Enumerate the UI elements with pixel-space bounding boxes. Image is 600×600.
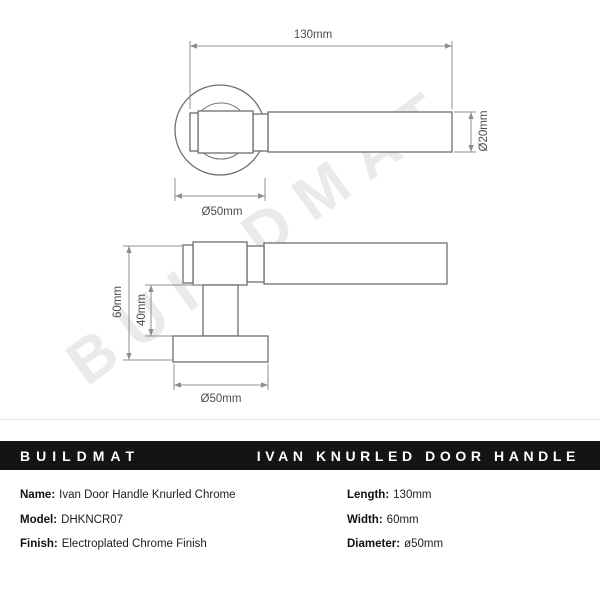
spec-value: ø50mm [404,538,443,550]
bar-diameter-label: Ø20mm [478,111,490,152]
spec-value: Electroplated Chrome Finish [62,538,207,550]
lever-bar [268,112,452,152]
spec-value: 130mm [393,489,431,501]
technical-drawing: 130mm Ø50mm Ø20mm [0,0,600,435]
lever-bar-side [264,243,447,284]
spec-value: Ivan Door Handle Knurled Chrome [59,489,235,501]
lever-connector-side [247,246,264,282]
stem [203,285,238,336]
dimension-rose-diameter-top: Ø50mm [175,178,265,218]
rose-diameter-label-top: Ø50mm [202,206,243,218]
spec-row-length: Length:130mm [347,483,443,508]
brand-name: BUILDMAT [20,448,140,464]
overall-height-label: 60mm [112,286,124,318]
length-dimension-label: 130mm [294,29,332,41]
spec-label: Name: [20,489,55,501]
lever-connector [253,114,268,151]
stem-height-label: 40mm [136,294,148,326]
spec-value: 60mm [387,514,419,526]
dimension-bar-diameter: Ø20mm [454,111,490,152]
product-title: IVAN KNURLED DOOR HANDLE [257,448,580,464]
spec-row-diameter: Diameter:ø50mm [347,532,443,557]
side-view-drawing: 60mm 40mm Ø50mm [112,242,447,405]
spec-sheet: BUILDMAT 130mm [0,0,600,600]
spec-label: Diameter: [347,538,400,550]
rose-base-side [173,336,268,362]
spec-label: Width: [347,514,383,526]
knurled-grip [198,111,253,153]
dimension-40mm: 40mm [136,285,203,336]
dimension-rose-diameter-side: Ø50mm [174,364,268,405]
title-banner: BUILDMAT IVAN KNURLED DOOR HANDLE [0,441,600,470]
spec-label: Length: [347,489,389,501]
grip-collar-side [183,245,193,283]
spec-label: Finish: [20,538,58,550]
spec-value: DHKNCR07 [61,514,123,526]
knurled-grip-side [193,242,247,285]
spec-row-model: Model:DHKNCR07 [20,508,236,533]
spec-row-name: Name:Ivan Door Handle Knurled Chrome [20,483,236,508]
divider-line [0,419,600,420]
grip-collar [190,113,198,151]
spec-row-finish: Finish:Electroplated Chrome Finish [20,532,236,557]
spec-column-left: Name:Ivan Door Handle Knurled Chrome Mod… [20,483,236,557]
spec-column-right: Length:130mm Width:60mm Diameter:ø50mm [347,483,443,557]
spec-label: Model: [20,514,57,526]
spec-row-width: Width:60mm [347,508,443,533]
top-view-drawing: 130mm Ø50mm Ø20mm [175,29,490,218]
rose-diameter-label-side: Ø50mm [201,393,242,405]
